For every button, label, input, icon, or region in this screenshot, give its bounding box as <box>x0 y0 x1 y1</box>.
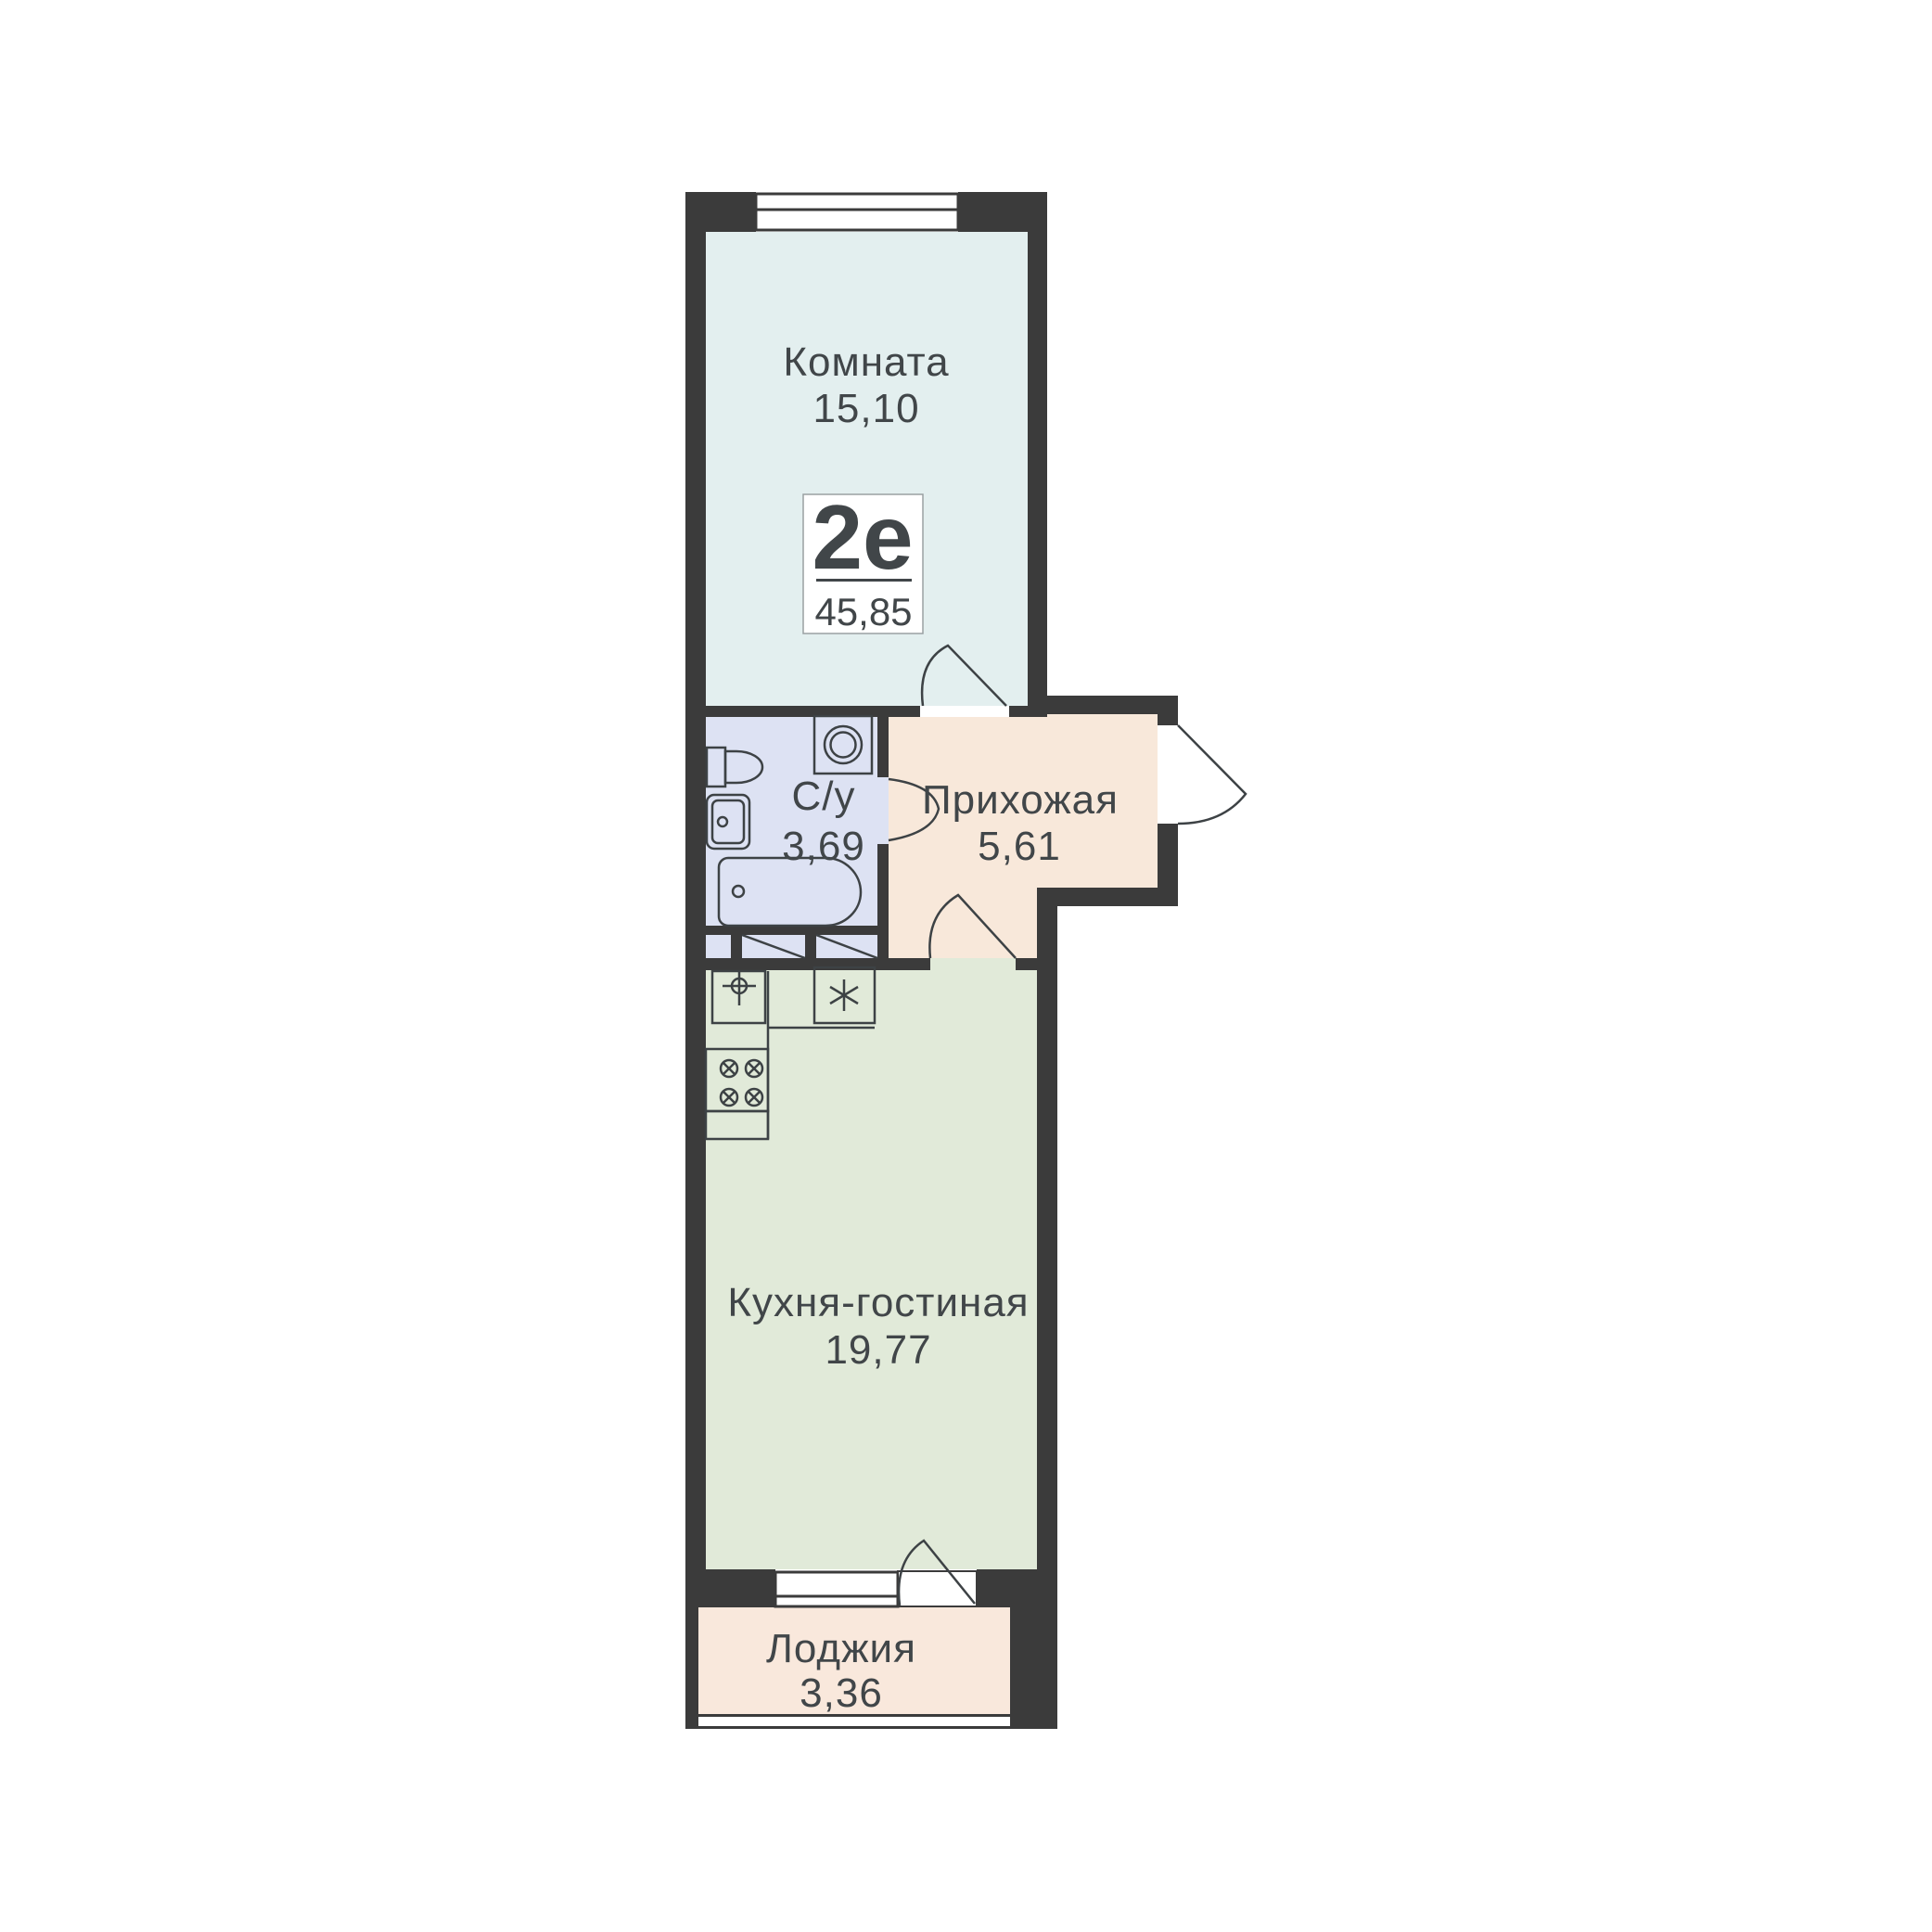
wall-kitchen-top-right <box>1016 958 1037 970</box>
total-area-label: 45,85 <box>814 590 912 633</box>
room-name-living: Комната <box>783 339 949 385</box>
wall-room-right <box>1028 232 1047 714</box>
wall-left <box>685 192 706 1607</box>
vent-divider <box>805 935 816 958</box>
room-area-living <box>706 232 1028 706</box>
balcony-door-opening <box>898 1571 977 1606</box>
room-door-opening <box>920 706 1009 717</box>
wall-bathroom-right-upper <box>877 716 889 777</box>
wall-kitchen-right <box>1037 906 1057 1729</box>
room-name-loggia: Лоджия <box>766 1626 916 1671</box>
floor-plan: Комната 15,10 С/у 3,69 Прихожая 5,61 Кух… <box>0 0 1932 1932</box>
apartment-type-badge: 2е 45,85 <box>803 486 923 633</box>
room-area-kitchen-label: 19,77 <box>825 1327 931 1373</box>
apartment-type-label: 2е <box>812 486 913 588</box>
wall-room-bottom-right <box>1009 706 1047 717</box>
window-kitchen-icon <box>775 1572 898 1606</box>
wall-room-bottom-left <box>706 706 920 717</box>
wall-top-left-block <box>685 192 756 232</box>
room-area-living-label: 15,10 <box>812 386 919 431</box>
wall-top-right-block <box>958 192 1047 232</box>
wall-hallway-bottom-right <box>1037 888 1178 906</box>
wall-entrance-top <box>1158 714 1178 725</box>
wall-left-loggia <box>685 1607 698 1729</box>
room-area-bathroom-label: 3,69 <box>782 824 865 869</box>
wall-loggia-right <box>1010 1607 1057 1729</box>
wall-loggia-top-left <box>706 1569 775 1607</box>
vent-divider <box>731 935 742 958</box>
badge-divider <box>816 579 912 582</box>
loggia-glazing-line-bottom <box>698 1726 1010 1729</box>
bathroom-door-opening <box>877 777 889 844</box>
wall-hallway-top <box>1047 696 1178 714</box>
wall-bathroom-bottom <box>706 926 889 935</box>
vent-shaft <box>706 935 731 958</box>
room-name-kitchen: Кухня-гостиная <box>727 1280 1029 1325</box>
room-area-hallway-label: 5,61 <box>978 824 1061 869</box>
room-area-loggia-label: 3,36 <box>800 1670 883 1716</box>
entrance-door-opening <box>1158 725 1178 824</box>
room-name-hallway: Прихожая <box>922 777 1119 823</box>
window-room-icon <box>756 194 958 230</box>
room-name-bathroom: С/у <box>792 774 856 819</box>
wall-loggia-top-right <box>977 1569 1037 1607</box>
wall-bathroom-right-lower <box>877 844 889 969</box>
kitchen-door-opening <box>930 958 1016 971</box>
room-area-bathroom <box>706 716 877 926</box>
